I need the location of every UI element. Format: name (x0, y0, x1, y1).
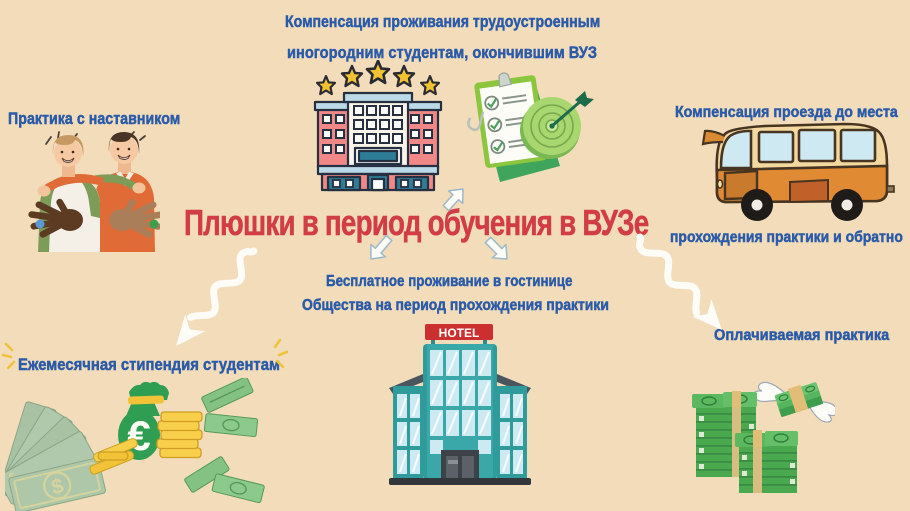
svg-text:HOTEL: HOTEL (439, 326, 480, 340)
